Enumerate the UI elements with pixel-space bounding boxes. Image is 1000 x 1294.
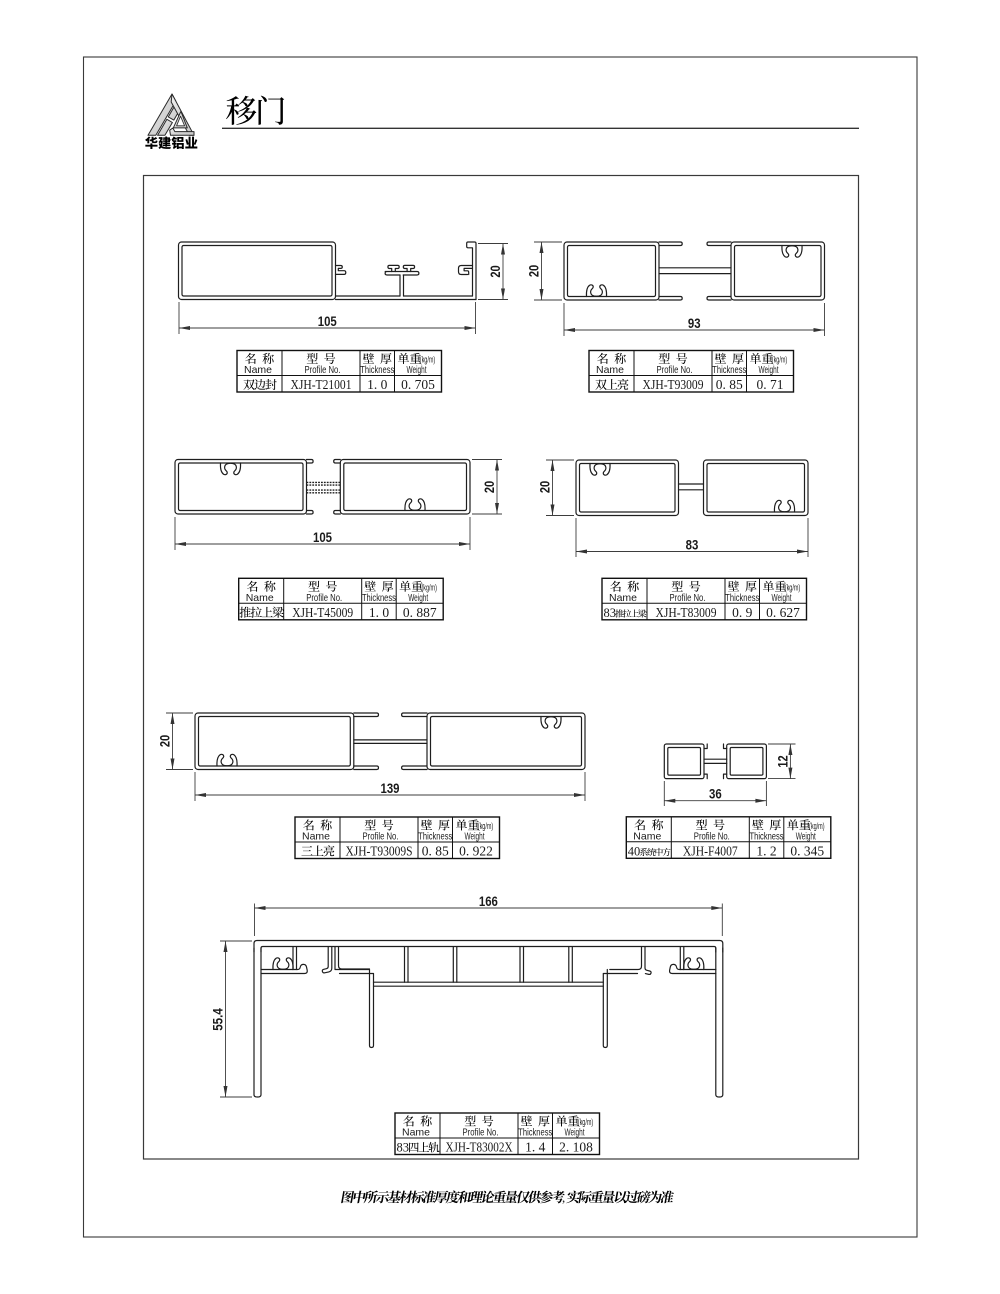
svg-text:XJH-T45009: XJH-T45009 [292, 605, 353, 620]
svg-text:1. 0: 1. 0 [369, 605, 390, 620]
svg-text:55.4: 55.4 [210, 1008, 226, 1031]
svg-text:Thickness: Thickness [725, 592, 759, 604]
svg-text:Weight: Weight [465, 832, 485, 843]
svg-text:Thickness: Thickness [360, 364, 394, 376]
svg-text:1. 4: 1. 4 [525, 1140, 546, 1155]
svg-text:1. 0: 1. 0 [367, 377, 388, 392]
svg-text:20: 20 [537, 481, 553, 493]
svg-text:XJH-T83002X: XJH-T83002X [445, 1140, 512, 1155]
svg-text:0. 85: 0. 85 [422, 844, 449, 859]
svg-text:Weight: Weight [565, 1128, 585, 1139]
svg-text:1. 2: 1. 2 [756, 843, 776, 858]
svg-text:(kg/m): (kg/m) [785, 582, 801, 592]
svg-text:0. 705: 0. 705 [401, 377, 435, 392]
svg-text:0. 9: 0. 9 [732, 605, 753, 620]
svg-text:Weight: Weight [759, 365, 779, 376]
svg-text:20: 20 [526, 265, 542, 277]
svg-text:93: 93 [688, 315, 701, 331]
svg-text:0. 887: 0. 887 [403, 605, 437, 620]
svg-text:20: 20 [157, 735, 173, 747]
svg-text:Profile No.: Profile No. [670, 592, 706, 604]
svg-text:Thickness: Thickness [362, 592, 396, 604]
svg-text:(kg/m): (kg/m) [478, 821, 494, 831]
svg-text:0. 345: 0. 345 [790, 843, 824, 858]
svg-text:105: 105 [313, 529, 332, 545]
svg-text:0. 922: 0. 922 [459, 844, 493, 859]
svg-text:0. 71: 0. 71 [757, 377, 784, 392]
svg-text:Name: Name [402, 1127, 430, 1139]
svg-text:Weight: Weight [408, 593, 428, 604]
svg-text:XJH-T93009: XJH-T93009 [643, 377, 704, 392]
svg-text:0. 627: 0. 627 [766, 605, 800, 620]
svg-text:12: 12 [774, 755, 790, 767]
svg-text:36: 36 [709, 786, 722, 802]
svg-text:XJH-T21001: XJH-T21001 [291, 377, 352, 392]
svg-text:(kg/m): (kg/m) [809, 821, 825, 831]
svg-text:(kg/m): (kg/m) [578, 1117, 594, 1127]
svg-text:105: 105 [318, 313, 337, 329]
svg-text:Weight: Weight [796, 831, 816, 842]
svg-text:83: 83 [686, 537, 699, 553]
svg-text:(kg/m): (kg/m) [420, 355, 436, 365]
svg-text:83: 83 [397, 1141, 410, 1155]
svg-text:XJH-T93009S: XJH-T93009S [345, 844, 412, 859]
svg-text:40: 40 [628, 844, 641, 858]
svg-text:,: , [562, 1190, 565, 1205]
svg-text:0. 85: 0. 85 [716, 377, 743, 392]
svg-text:Weight: Weight [772, 593, 792, 604]
svg-text:Profile No.: Profile No. [306, 592, 342, 604]
svg-text:Profile No.: Profile No. [363, 831, 399, 843]
svg-text:83: 83 [604, 606, 617, 620]
svg-text:Profile No.: Profile No. [657, 364, 693, 376]
svg-text:(kg/m): (kg/m) [772, 355, 788, 365]
svg-text:XJH-T83009: XJH-T83009 [656, 605, 717, 620]
svg-text:Profile No.: Profile No. [305, 364, 341, 376]
svg-text:Profile No.: Profile No. [463, 1127, 499, 1139]
svg-text:Weight: Weight [407, 365, 427, 376]
svg-text:139: 139 [381, 780, 400, 796]
svg-text:Name: Name [246, 592, 274, 604]
svg-text:XJH-F4007: XJH-F4007 [683, 843, 738, 858]
svg-text:166: 166 [479, 893, 498, 909]
svg-text:Name: Name [596, 364, 624, 376]
svg-text:Name: Name [302, 831, 330, 843]
svg-text:Thickness: Thickness [750, 830, 784, 842]
svg-text:Name: Name [633, 830, 661, 842]
svg-text:(kg/m): (kg/m) [421, 582, 437, 592]
svg-text:Name: Name [609, 592, 637, 604]
svg-text:Thickness: Thickness [712, 364, 746, 376]
svg-text:20: 20 [487, 265, 503, 277]
svg-text:Name: Name [244, 364, 272, 376]
svg-text:2. 108: 2. 108 [559, 1140, 593, 1155]
svg-text:Thickness: Thickness [518, 1127, 552, 1139]
svg-text:Profile No.: Profile No. [694, 830, 730, 842]
svg-text:Thickness: Thickness [418, 831, 452, 843]
svg-text:20: 20 [481, 481, 497, 493]
